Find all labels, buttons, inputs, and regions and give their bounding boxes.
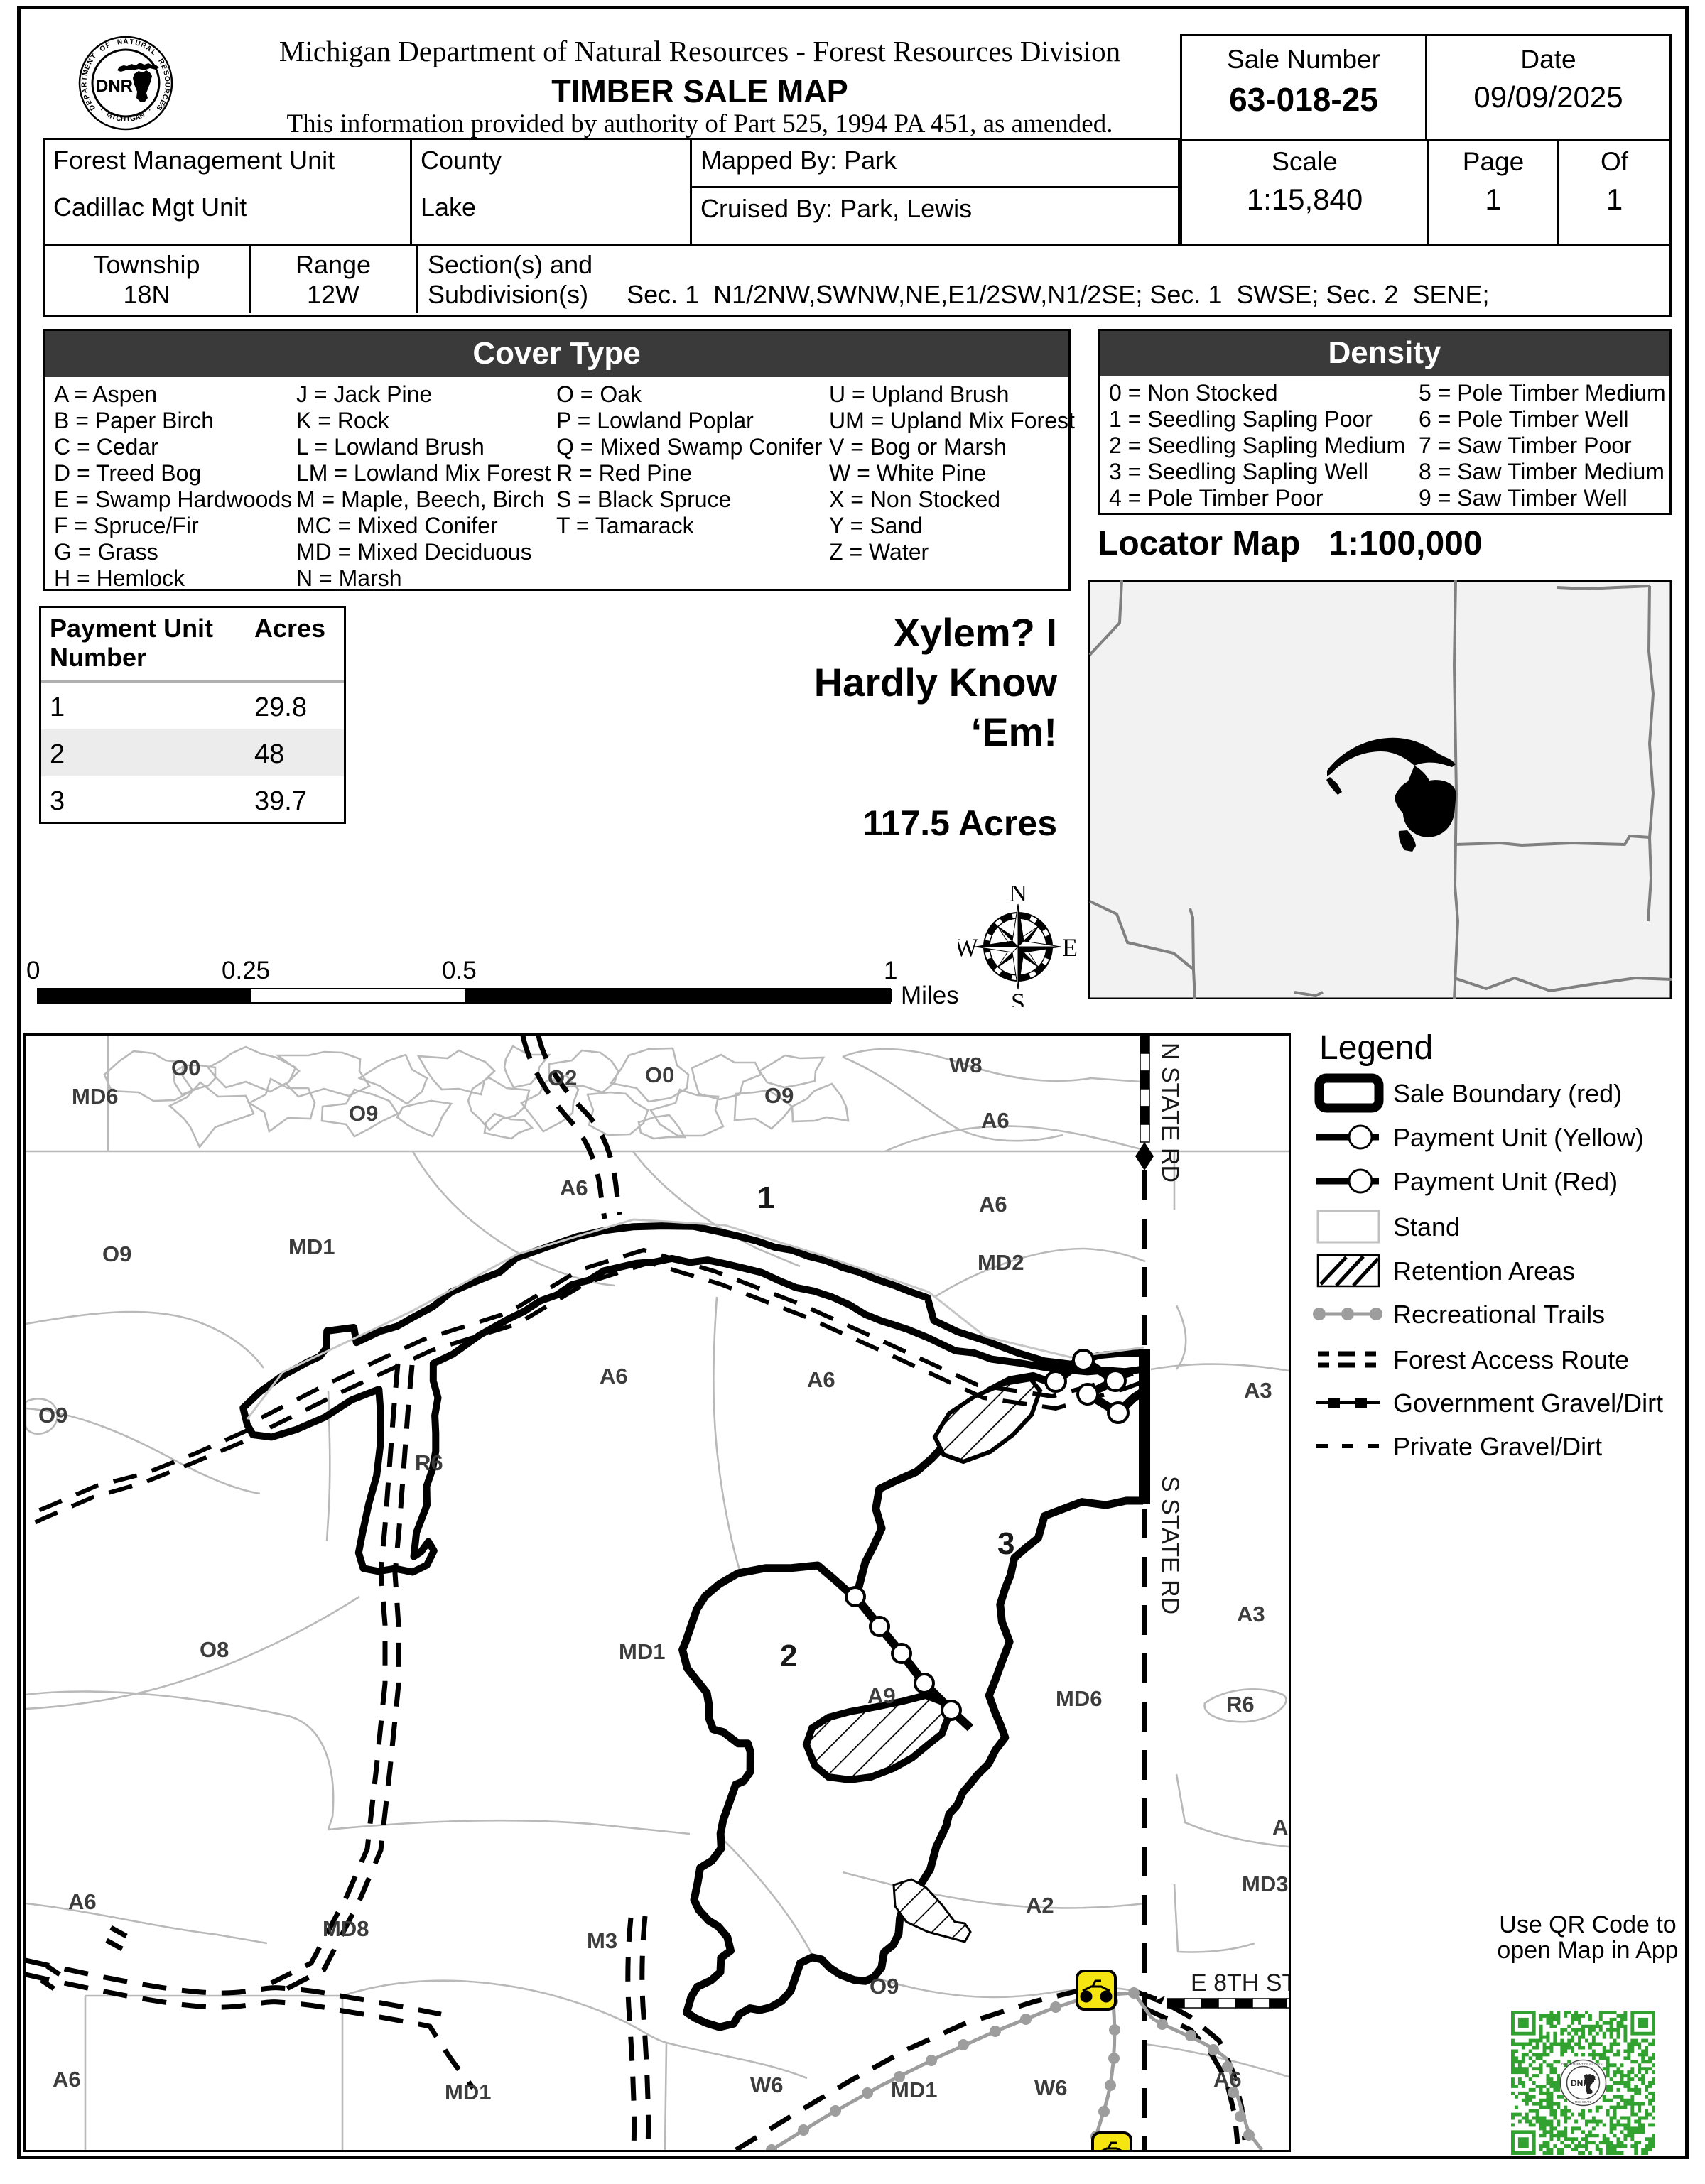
svg-text:MD1: MD1 [288,1234,335,1259]
svg-text:O2: O2 [548,1065,577,1090]
svg-text:A: A [123,38,128,46]
svg-text:A6: A6 [981,1108,1010,1133]
svg-text:O9: O9 [349,1101,378,1126]
svg-text:M3: M3 [587,1928,617,1953]
svg-text:A3: A3 [1272,1815,1289,1840]
svg-text:N STATE RD: N STATE RD [1157,1043,1184,1183]
svg-text:TM: TM [160,104,167,109]
svg-text:A6: A6 [979,1192,1007,1217]
svg-text:W8: W8 [949,1053,983,1077]
svg-text:MD6: MD6 [72,1084,118,1109]
svg-text:A6: A6 [807,1367,835,1392]
svg-text:A6: A6 [600,1364,628,1389]
svg-text:MD1: MD1 [445,2080,491,2104]
svg-text:O9: O9 [870,1974,899,1999]
svg-text:R6: R6 [1226,1692,1255,1717]
svg-text:W: W [958,933,978,962]
svg-text:A6: A6 [1213,2067,1242,2092]
svg-text:A6: A6 [560,1175,588,1200]
svg-text:3: 3 [997,1526,1014,1561]
svg-text:DEPARTMENT OF NATURAL: DEPARTMENT OF NATURAL [1561,2063,1604,2066]
svg-text:A9: A9 [867,1683,896,1708]
svg-text:R6: R6 [415,1450,443,1475]
svg-text:Government Gravel/Dirt: Government Gravel/Dirt [1393,1389,1663,1418]
svg-text:MD2: MD2 [978,1250,1024,1275]
svg-text:Retention Areas: Retention Areas [1393,1256,1575,1286]
svg-text:N: N [1009,886,1027,907]
svg-text:Forest Access Route: Forest Access Route [1393,1345,1629,1374]
svg-text:A3: A3 [1237,1602,1265,1626]
svg-text:O9: O9 [102,1242,131,1266]
svg-text:Recreational Trails: Recreational Trails [1393,1300,1605,1329]
svg-text:DNR: DNR [96,77,133,96]
svg-text:Payment Unit (Red): Payment Unit (Red) [1393,1167,1618,1196]
svg-text:S STATE RD: S STATE RD [1157,1476,1184,1614]
svg-text:A2: A2 [1026,1893,1054,1918]
svg-text:MD6: MD6 [1056,1686,1102,1711]
svg-text:Payment Unit (Yellow): Payment Unit (Yellow) [1393,1123,1644,1152]
svg-text:U: U [163,82,170,88]
svg-text:Sale Boundary (red): Sale Boundary (red) [1393,1079,1622,1108]
svg-text:1: 1 [757,1180,774,1215]
svg-text:E: E [1062,933,1078,962]
svg-text:O8: O8 [200,1637,229,1662]
svg-text:Private Gravel/Dirt: Private Gravel/Dirt [1393,1432,1602,1461]
svg-text:MD8: MD8 [323,1916,369,1941]
svg-text:A6: A6 [68,1889,97,1914]
svg-text:O0: O0 [645,1063,674,1087]
svg-text:2: 2 [780,1639,797,1673]
svg-text:MD3: MD3 [1242,1871,1288,1896]
svg-text:O: O [163,75,171,82]
svg-text:W6: W6 [1034,2075,1068,2100]
svg-text:O9: O9 [38,1403,67,1428]
svg-text:Stand: Stand [1393,1212,1460,1242]
svg-text:A3: A3 [1244,1378,1272,1403]
svg-text:H: H [121,116,126,124]
svg-text:MICHIGAN: MICHIGAN [1575,2100,1591,2104]
svg-text:A6: A6 [53,2067,81,2092]
svg-text:E 8TH ST: E 8TH ST [1191,1970,1289,1996]
svg-text:MD1: MD1 [619,1639,665,1664]
svg-text:R: R [80,82,88,87]
svg-text:S: S [1011,988,1025,1007]
svg-text:W6: W6 [750,2072,784,2097]
svg-text:MD1: MD1 [891,2077,937,2102]
svg-text:O0: O0 [171,1055,200,1080]
svg-text:O9: O9 [764,1083,794,1108]
